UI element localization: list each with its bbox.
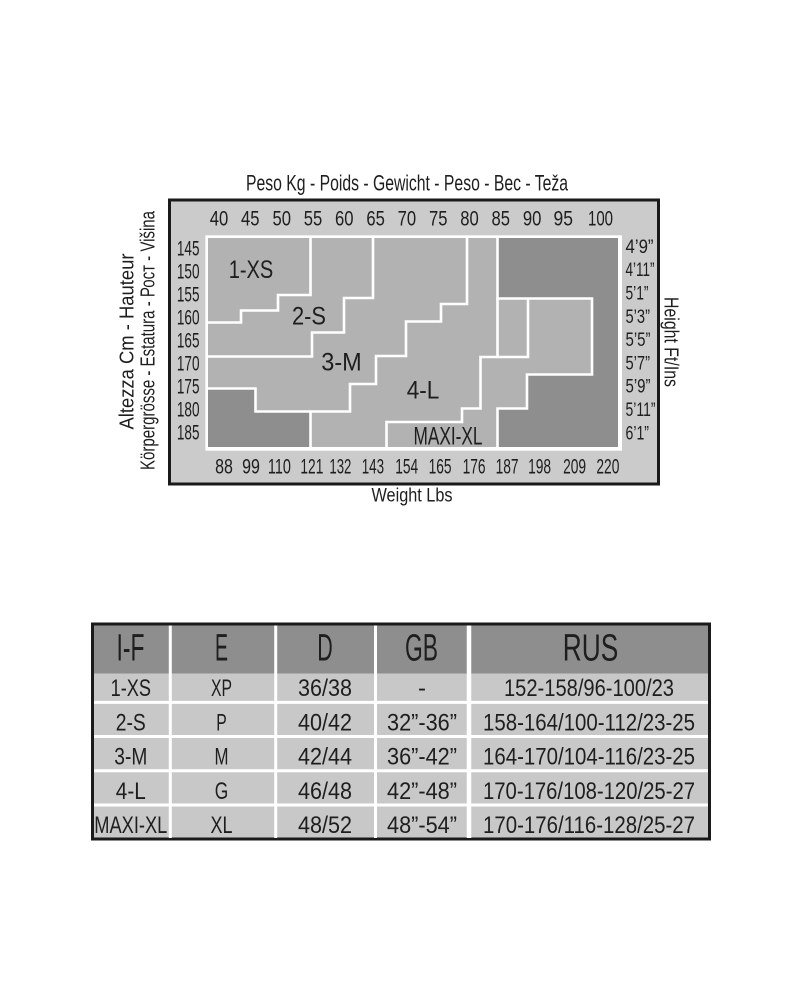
svg-text:187: 187 (496, 455, 519, 479)
svg-text:158-164/100-112/23-25: 158-164/100-112/23-25 (483, 709, 695, 736)
svg-text:175: 175 (177, 375, 200, 398)
svg-text:185: 185 (177, 421, 200, 444)
svg-text:I-F: I-F (117, 628, 145, 670)
svg-text:Peso Kg - Poids - Gewicht - Pe: Peso Kg - Poids - Gewicht - Peso - Bec -… (246, 171, 569, 196)
svg-text:P: P (216, 709, 227, 736)
svg-text:132: 132 (329, 455, 351, 479)
svg-text:5’9”: 5’9” (626, 377, 651, 398)
svg-text:48”-54”: 48”-54” (387, 812, 457, 839)
svg-text:5’11”: 5’11” (626, 400, 656, 421)
svg-text:65: 65 (366, 207, 385, 231)
svg-text:150: 150 (177, 260, 200, 283)
svg-text:5’7”: 5’7” (626, 353, 651, 374)
svg-text:XL: XL (211, 812, 233, 839)
svg-text:1-XS: 1-XS (111, 675, 151, 702)
svg-text:Körpergrösse - Estatura - Рост: Körpergrösse - Estatura - Рост - Višina (137, 210, 159, 470)
svg-text:154: 154 (395, 455, 418, 479)
svg-text:209: 209 (563, 455, 586, 479)
svg-text:4’9”: 4’9” (626, 237, 654, 258)
svg-text:60: 60 (335, 207, 354, 231)
svg-text:88: 88 (215, 455, 233, 479)
svg-text:145: 145 (177, 237, 200, 260)
svg-text:5’1”: 5’1” (626, 284, 649, 305)
svg-text:5’3”: 5’3” (626, 307, 651, 328)
svg-text:70: 70 (398, 207, 417, 231)
svg-text:90: 90 (523, 207, 542, 231)
svg-text:36”-42”: 36”-42” (387, 744, 457, 771)
svg-text:36/38: 36/38 (298, 675, 352, 702)
svg-text:4-L: 4-L (116, 778, 146, 805)
svg-text:100: 100 (588, 207, 613, 231)
svg-text:3-M: 3-M (114, 744, 147, 771)
svg-text:D: D (317, 628, 333, 670)
svg-text:40/42: 40/42 (298, 709, 352, 736)
svg-text:80: 80 (460, 207, 479, 231)
svg-text:6’1”: 6’1” (626, 423, 650, 444)
svg-text:152-158/96-100/23: 152-158/96-100/23 (504, 675, 674, 702)
svg-text:4’11”: 4’11” (626, 260, 655, 281)
svg-text:RUS: RUS (563, 628, 619, 670)
svg-text:85: 85 (492, 207, 511, 231)
svg-text:164-170/104-116/23-25: 164-170/104-116/23-25 (483, 744, 695, 771)
svg-text:155: 155 (177, 283, 200, 306)
svg-text:32”-36”: 32”-36” (387, 709, 457, 736)
svg-text:95: 95 (554, 207, 574, 231)
svg-text:42/44: 42/44 (298, 744, 352, 771)
svg-text:XP: XP (211, 675, 232, 702)
svg-text:170: 170 (177, 352, 200, 375)
svg-text:Height Ft/Ins: Height Ft/Ins (660, 297, 682, 387)
svg-text:180: 180 (177, 398, 200, 421)
svg-text:Weight Lbs: Weight Lbs (372, 486, 453, 507)
svg-text:2-S: 2-S (292, 303, 326, 331)
svg-text:M: M (215, 744, 229, 771)
svg-text:-: - (418, 675, 426, 702)
svg-text:165: 165 (429, 455, 452, 479)
svg-text:4-L: 4-L (407, 377, 440, 405)
svg-text:170-176/108-120/25-27: 170-176/108-120/25-27 (483, 778, 695, 805)
svg-text:165: 165 (177, 329, 200, 352)
svg-text:50: 50 (272, 207, 291, 231)
svg-text:176: 176 (463, 455, 486, 479)
svg-text:1-XS: 1-XS (229, 256, 274, 284)
svg-text:143: 143 (362, 455, 384, 479)
svg-text:75: 75 (429, 207, 448, 231)
svg-text:40: 40 (210, 207, 229, 231)
svg-text:48/52: 48/52 (298, 812, 352, 839)
svg-text:5’5”: 5’5” (626, 330, 651, 351)
svg-text:E: E (215, 628, 228, 670)
svg-text:121: 121 (300, 455, 323, 479)
svg-text:46/48: 46/48 (298, 778, 352, 805)
svg-text:MAXI-XL: MAXI-XL (414, 423, 483, 451)
svg-text:170-176/116-128/25-27: 170-176/116-128/25-27 (483, 812, 695, 839)
svg-text:GB: GB (405, 628, 438, 670)
svg-text:Altezza Cm - Hauteur: Altezza Cm - Hauteur (117, 253, 139, 429)
svg-text:220: 220 (596, 455, 619, 479)
svg-text:2-S: 2-S (116, 709, 146, 736)
svg-text:3-M: 3-M (321, 349, 362, 377)
svg-text:42”-48”: 42”-48” (387, 778, 457, 805)
svg-text:45: 45 (241, 207, 260, 231)
svg-text:198: 198 (528, 455, 551, 479)
svg-text:110: 110 (268, 455, 291, 479)
svg-text:G: G (215, 778, 229, 805)
svg-text:55: 55 (304, 207, 323, 231)
svg-text:99: 99 (242, 455, 260, 479)
svg-text:MAXI-XL: MAXI-XL (94, 812, 167, 839)
svg-text:160: 160 (177, 306, 200, 329)
